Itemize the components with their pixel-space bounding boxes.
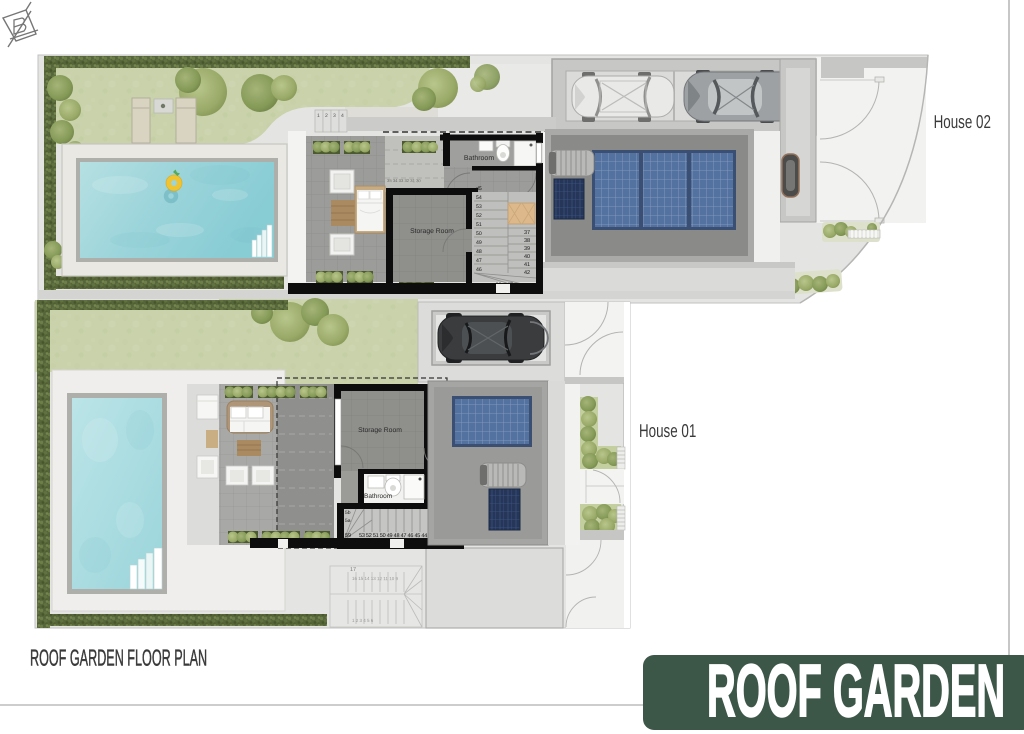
- svg-text:Storage Room: Storage Room: [410, 228, 454, 235]
- svg-text:39: 39: [524, 246, 530, 252]
- svg-text:41: 41: [524, 262, 530, 268]
- svg-text:40: 40: [524, 254, 530, 260]
- svg-text:2: 2: [325, 113, 328, 119]
- svg-text:49: 49: [476, 240, 482, 246]
- svg-text:38: 38: [524, 238, 530, 244]
- svg-text:d5: d5: [476, 186, 482, 192]
- svg-text:54: 54: [476, 195, 482, 201]
- svg-text:52: 52: [476, 213, 482, 219]
- svg-text:51: 51: [476, 222, 482, 228]
- svg-text:53: 53: [476, 204, 482, 210]
- svg-text:47: 47: [476, 258, 482, 264]
- svg-text:House 02: House 02: [934, 111, 991, 132]
- svg-text:16 15 14 13 12 11 10 9: 16 15 14 13 12 11 10 9: [352, 576, 398, 581]
- svg-text:42: 42: [524, 270, 530, 276]
- svg-text:1: 1: [317, 113, 320, 119]
- svg-text:4: 4: [341, 113, 344, 119]
- svg-text:17: 17: [350, 567, 356, 573]
- svg-text:1 2 3 4 5 6: 1 2 3 4 5 6: [352, 618, 374, 623]
- svg-text:46: 46: [476, 267, 482, 273]
- svg-text:5a: 5a: [345, 518, 351, 524]
- svg-text:ROOF GARDEN: ROOF GARDEN: [707, 649, 1005, 732]
- svg-text:48: 48: [476, 249, 482, 255]
- svg-text:Storage Room: Storage Room: [358, 427, 402, 434]
- svg-text:ROOF GARDEN FLOOR PLAN: ROOF GARDEN FLOOR PLAN: [30, 645, 207, 671]
- svg-text:House 01: House 01: [639, 420, 696, 441]
- svg-text:3: 3: [333, 113, 336, 119]
- svg-text:50: 50: [476, 231, 482, 237]
- svg-text:37: 37: [524, 230, 530, 236]
- svg-text:Bathroom: Bathroom: [464, 154, 495, 162]
- svg-text:5b: 5b: [345, 510, 351, 516]
- svg-text:35 34 33 32 31 30: 35 34 33 32 31 30: [387, 178, 421, 183]
- svg-text:Bathroom: Bathroom: [364, 493, 392, 500]
